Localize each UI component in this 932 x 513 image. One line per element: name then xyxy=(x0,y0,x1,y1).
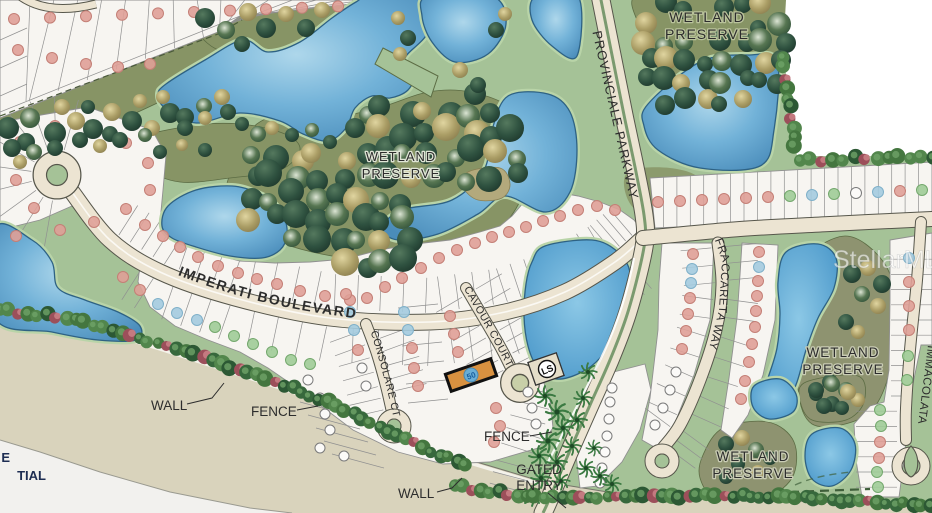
svg-text:PRESERVE: PRESERVE xyxy=(712,466,793,481)
svg-text:WETLAND: WETLAND xyxy=(716,449,789,464)
svg-text:StellarMLS: StellarMLS xyxy=(833,246,932,274)
svg-text:E: E xyxy=(1,450,10,465)
svg-text:WETLAND: WETLAND xyxy=(806,345,879,360)
svg-text:PRESERVE: PRESERVE xyxy=(665,26,749,42)
svg-text:WALL: WALL xyxy=(151,398,188,413)
svg-text:PRESERVE: PRESERVE xyxy=(802,362,883,377)
svg-text:WETLAND: WETLAND xyxy=(669,9,744,25)
svg-text:FENCE: FENCE xyxy=(251,404,297,419)
svg-text:FENCE: FENCE xyxy=(484,429,530,444)
svg-text:WETLAND: WETLAND xyxy=(366,149,437,164)
svg-text:WALL: WALL xyxy=(398,486,435,501)
svg-text:ENTRY: ENTRY xyxy=(516,478,562,493)
svg-text:PRESERVE: PRESERVE xyxy=(362,166,441,181)
svg-text:TIAL: TIAL xyxy=(17,468,46,483)
svg-text:GATED: GATED xyxy=(516,462,562,477)
